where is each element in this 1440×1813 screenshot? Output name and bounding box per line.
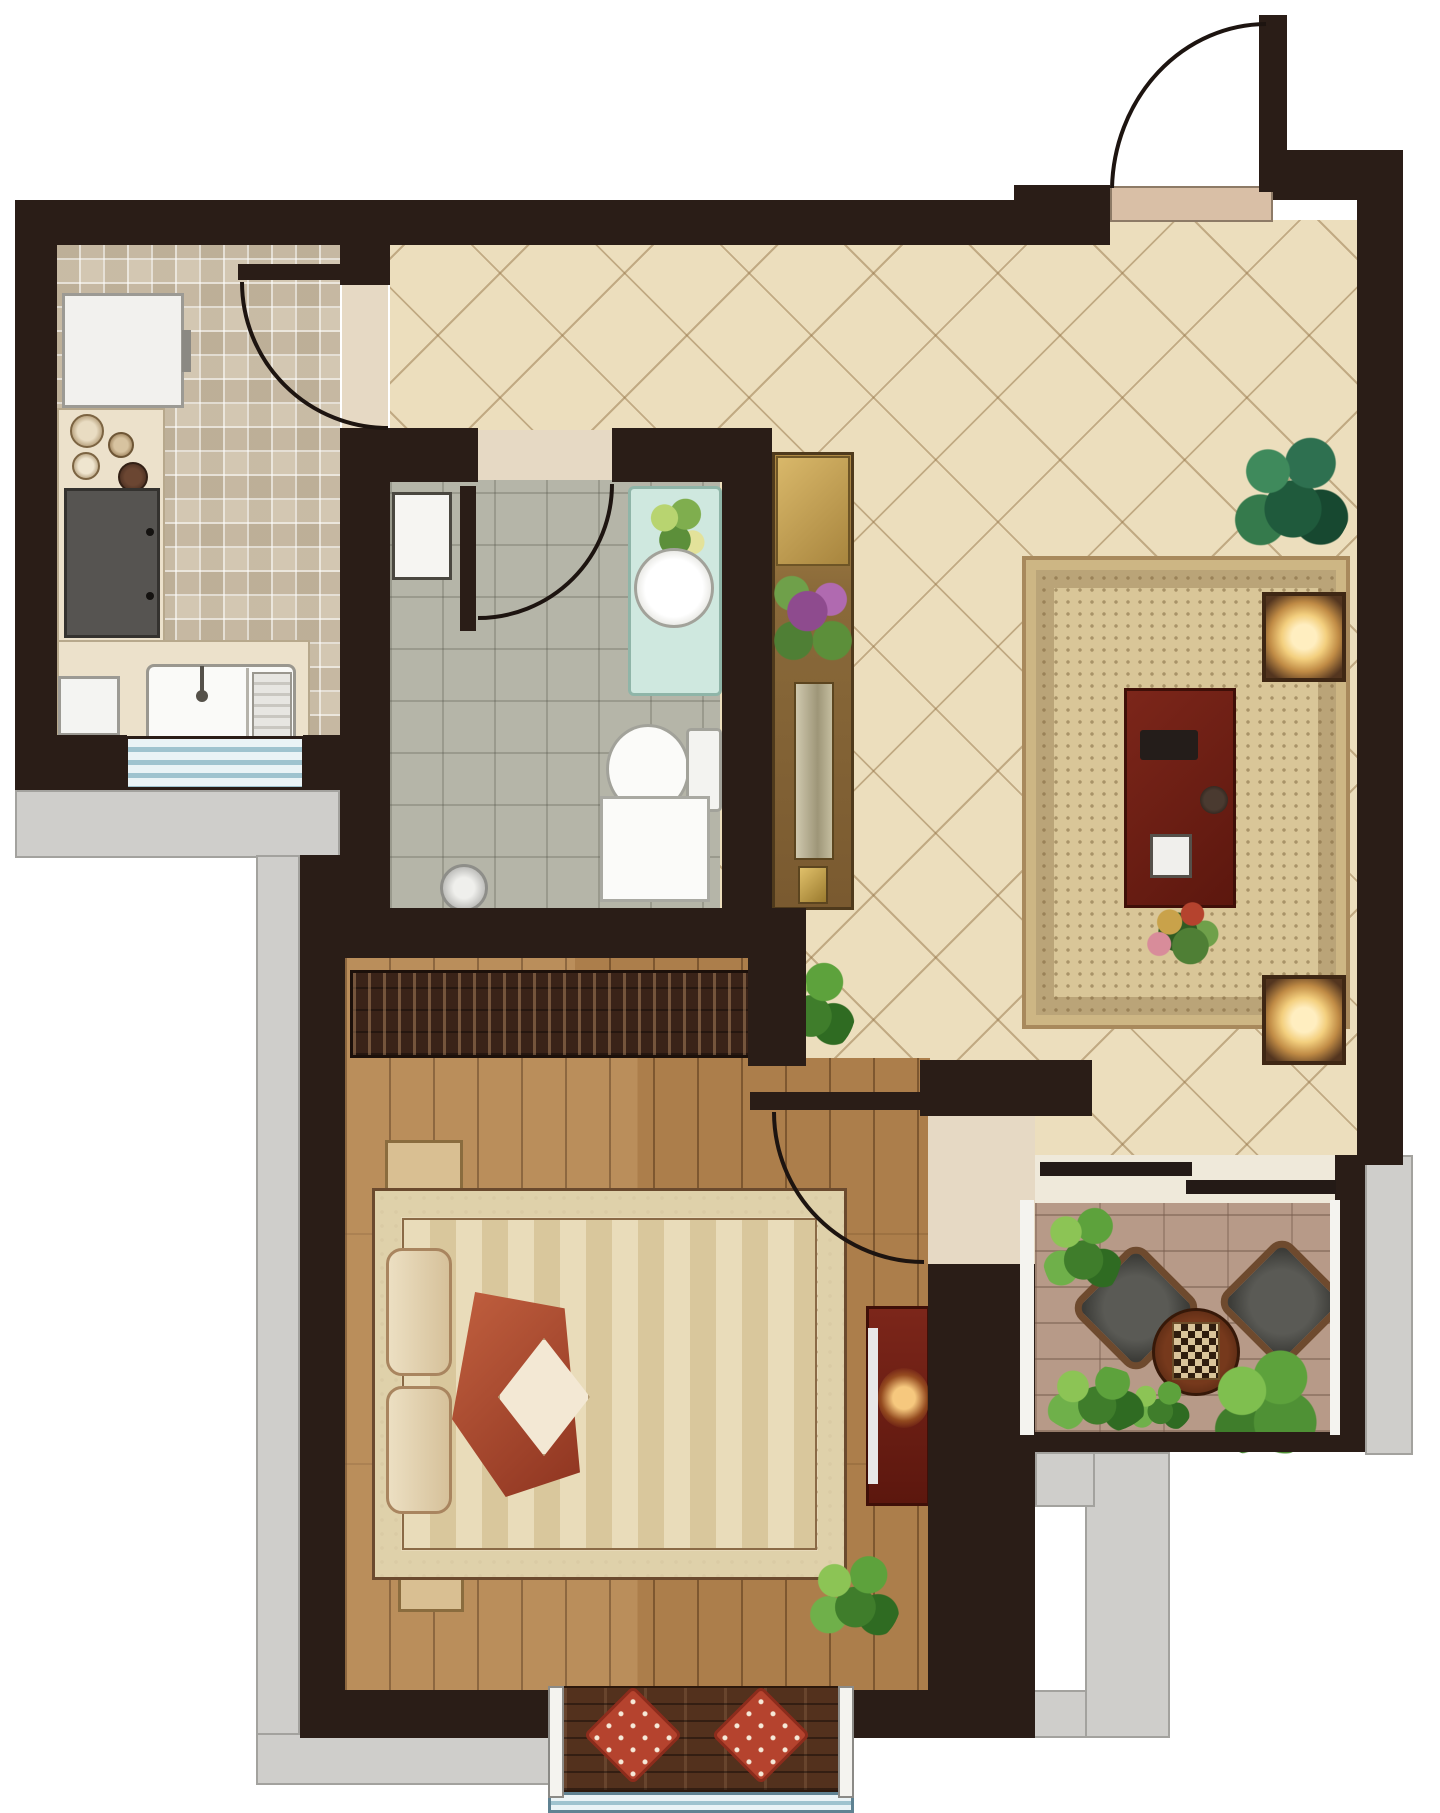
door-swing-arcs	[0, 0, 1440, 1813]
bathroom-door-leaf	[460, 486, 476, 631]
entrance-door-arc	[1112, 24, 1266, 188]
kitchen-door-arc	[242, 282, 388, 428]
bathroom-door-arc	[478, 484, 612, 618]
bedroom-door-arc	[774, 1112, 924, 1262]
bedroom-door-leaf	[750, 1092, 928, 1110]
kitchen-door-leaf	[238, 264, 388, 280]
floor-plan-canvas	[0, 0, 1440, 1813]
